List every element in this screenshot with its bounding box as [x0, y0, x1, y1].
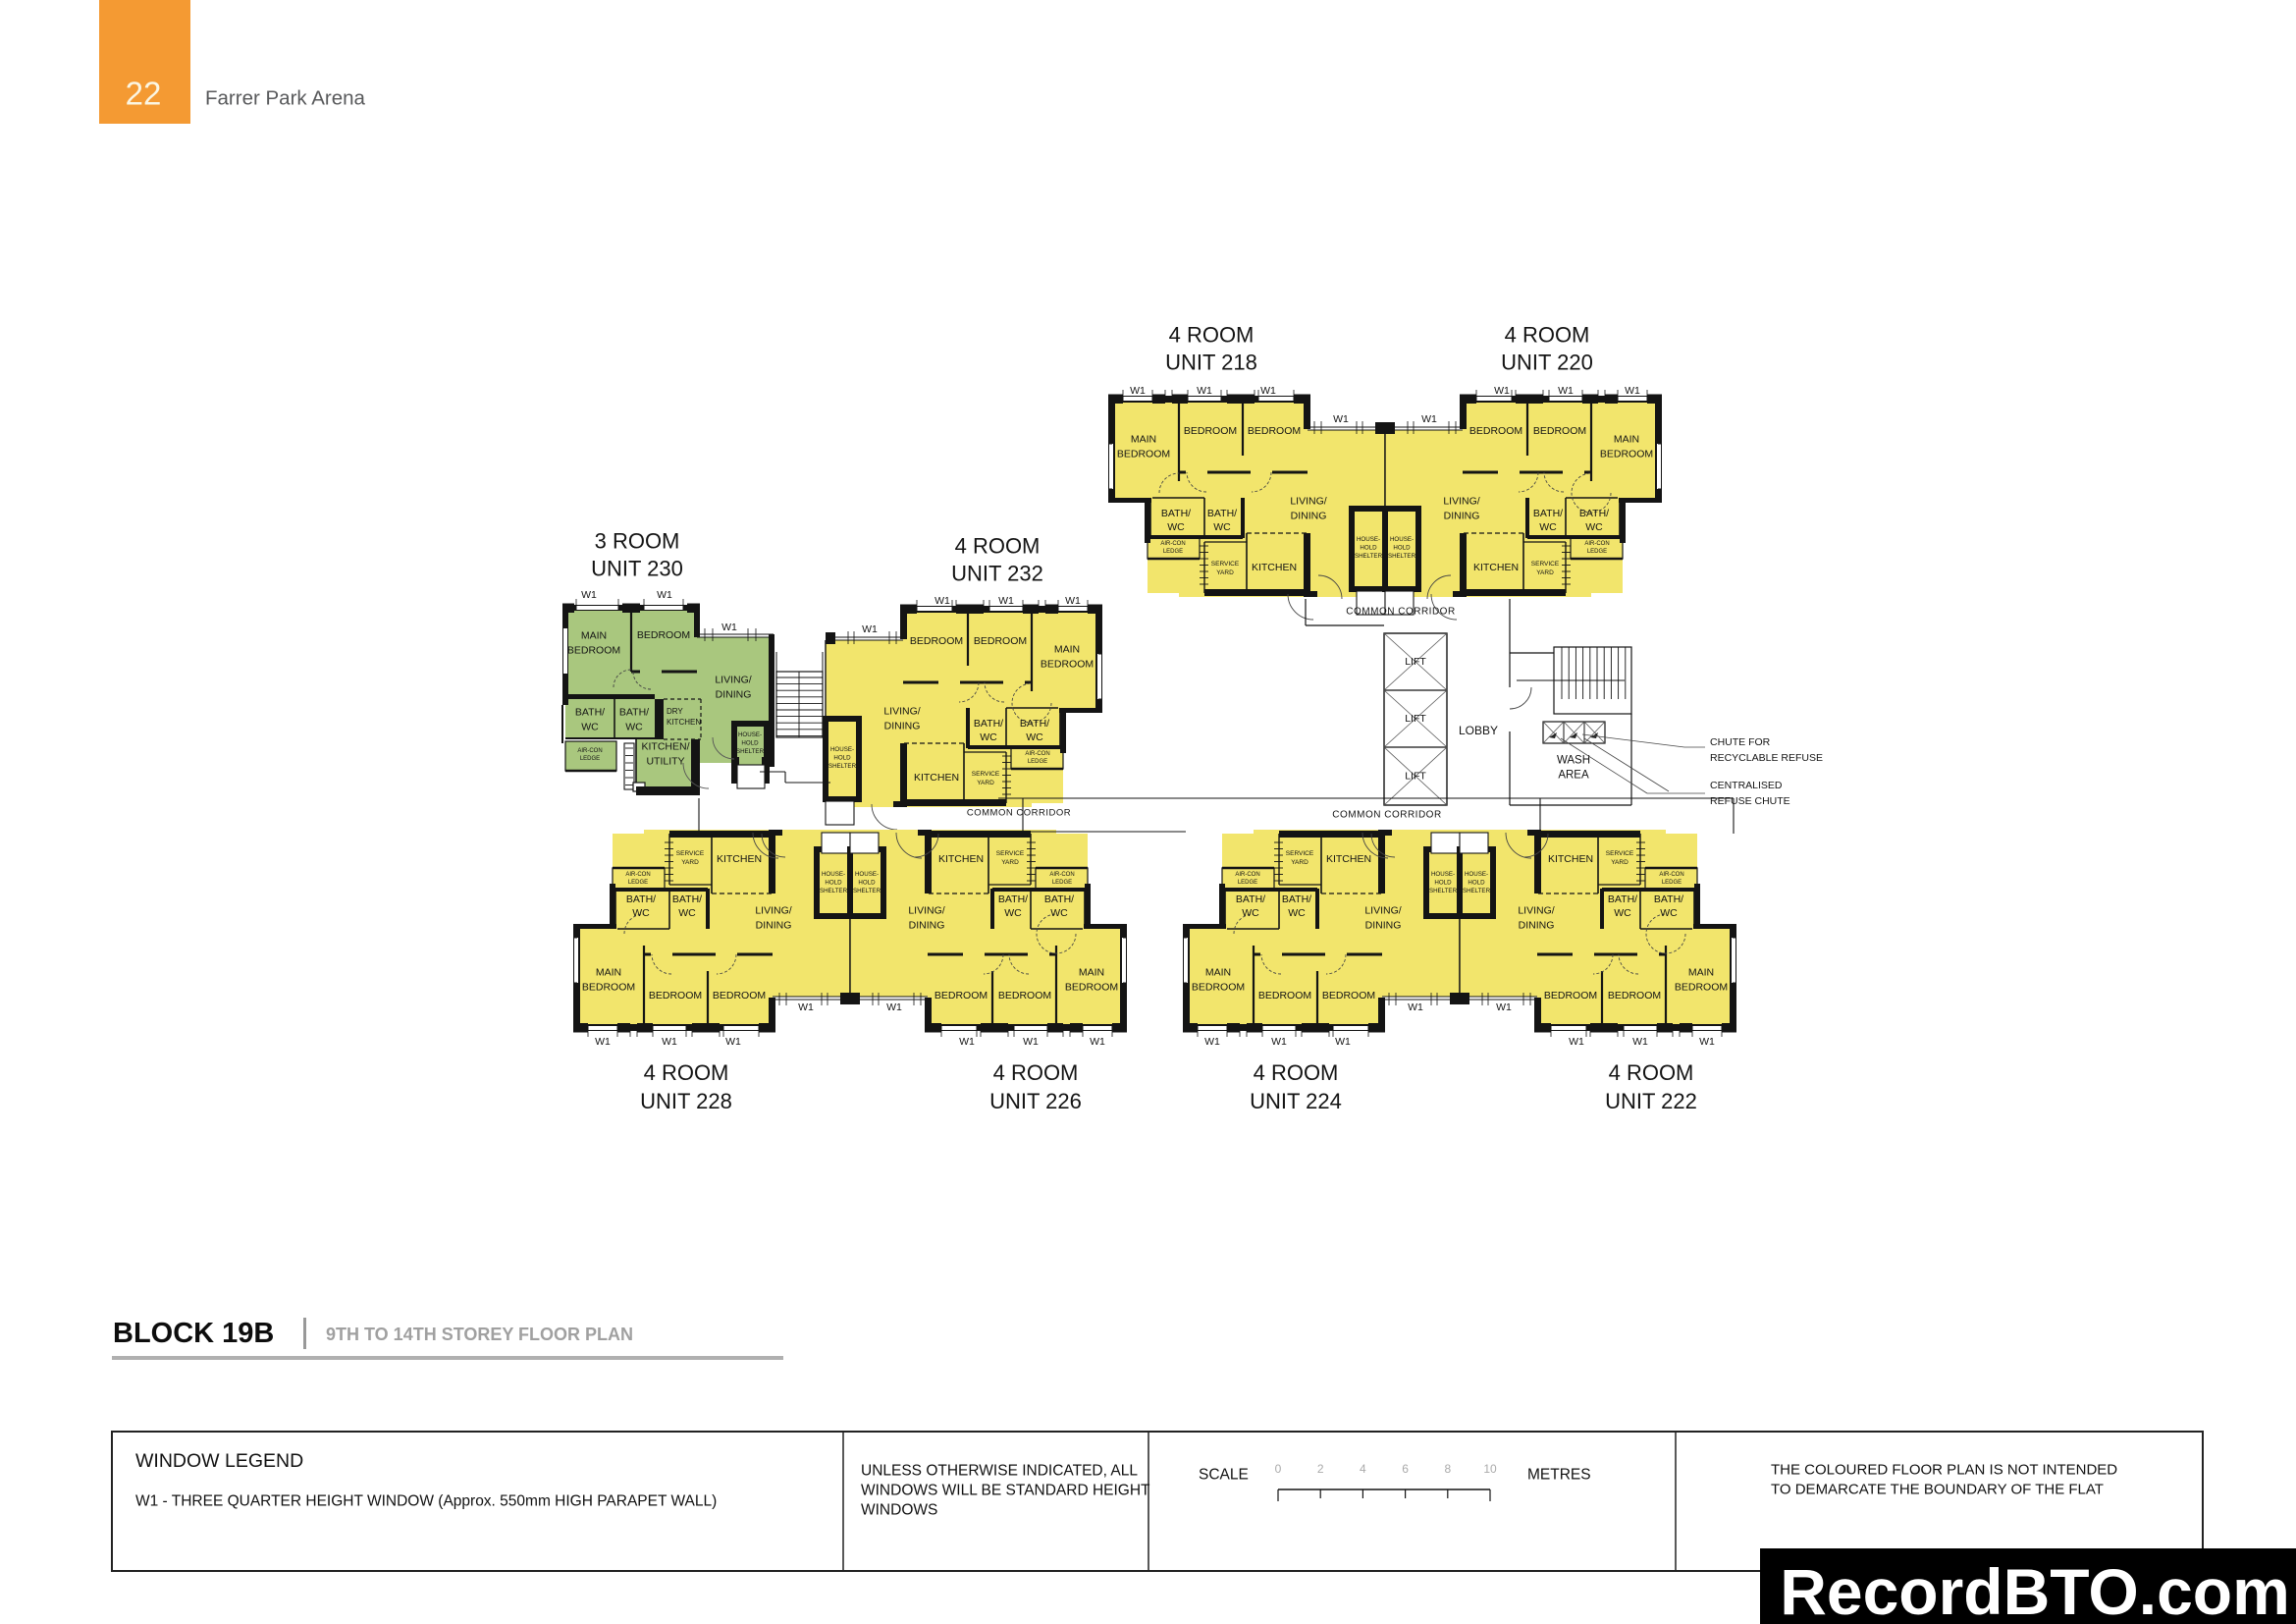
- svg-text:W1: W1: [1421, 413, 1437, 425]
- svg-text:W1: W1: [886, 1001, 902, 1013]
- svg-text:WC: WC: [625, 722, 643, 733]
- svg-text:HOLD: HOLD: [1360, 545, 1377, 552]
- svg-text:TO DEMARCATE THE BOUNDARY OF T: TO DEMARCATE THE BOUNDARY OF THE FLAT: [1771, 1482, 2104, 1498]
- svg-text:BATH/: BATH/: [1207, 508, 1237, 519]
- svg-text:DINING: DINING: [1365, 920, 1402, 932]
- svg-text:COMMON CORRIDOR: COMMON CORRIDOR: [1332, 810, 1441, 821]
- svg-text:BEDROOM: BEDROOM: [1248, 425, 1301, 437]
- svg-text:BEDROOM: BEDROOM: [1258, 990, 1311, 1001]
- svg-text:SERVICE: SERVICE: [1531, 561, 1560, 568]
- svg-text:BEDROOM: BEDROOM: [1065, 982, 1118, 994]
- svg-text:LIVING/: LIVING/: [755, 905, 791, 917]
- svg-text:LIFT: LIFT: [1405, 771, 1426, 783]
- svg-text:LEDGE: LEDGE: [1238, 880, 1257, 886]
- svg-text:3 ROOM: 3 ROOM: [595, 529, 680, 554]
- svg-text:BEDROOM: BEDROOM: [1184, 425, 1237, 437]
- svg-text:MAIN: MAIN: [1054, 644, 1080, 656]
- svg-text:4 ROOM: 4 ROOM: [993, 1060, 1079, 1085]
- svg-text:LIVING/: LIVING/: [1290, 496, 1326, 508]
- svg-text:SHELTER: SHELTER: [1355, 553, 1383, 560]
- svg-text:WC: WC: [1539, 521, 1557, 533]
- svg-text:W1: W1: [662, 1036, 677, 1048]
- svg-text:BATH/: BATH/: [998, 893, 1028, 905]
- svg-text:BEDROOM: BEDROOM: [1675, 982, 1728, 994]
- svg-text:KITCHEN: KITCHEN: [717, 853, 762, 865]
- svg-text:BATH/: BATH/: [1020, 718, 1049, 730]
- svg-text:W1: W1: [1260, 385, 1276, 397]
- svg-text:SERVICE: SERVICE: [676, 850, 705, 857]
- svg-text:W1: W1: [934, 595, 950, 607]
- svg-text:SHELTER: SHELTER: [736, 748, 765, 755]
- svg-text:2: 2: [1317, 1462, 1324, 1476]
- svg-text:DINING: DINING: [756, 920, 792, 932]
- svg-text:UNIT 226: UNIT 226: [989, 1089, 1082, 1113]
- svg-text:AIR-CON: AIR-CON: [1659, 872, 1683, 878]
- svg-text:SERVICE: SERVICE: [1606, 850, 1634, 857]
- svg-text:HOLD: HOLD: [1393, 545, 1411, 552]
- svg-text:BATH/: BATH/: [1533, 508, 1563, 519]
- svg-text:YARD: YARD: [1216, 569, 1234, 576]
- svg-text:6: 6: [1402, 1462, 1409, 1476]
- svg-text:BEDROOM: BEDROOM: [1117, 449, 1170, 460]
- svg-text:LIFT: LIFT: [1405, 713, 1426, 725]
- svg-text:UNIT 230: UNIT 230: [591, 557, 683, 581]
- svg-text:LEDGE: LEDGE: [1028, 759, 1047, 765]
- svg-text:UNIT 220: UNIT 220: [1501, 351, 1593, 375]
- svg-text:BATH/: BATH/: [1161, 508, 1191, 519]
- svg-text:COMMON CORRIDOR: COMMON CORRIDOR: [1346, 607, 1455, 618]
- svg-text:W1: W1: [1699, 1036, 1715, 1048]
- svg-text:YARD: YARD: [977, 780, 994, 786]
- svg-text:SCALE: SCALE: [1199, 1467, 1249, 1484]
- svg-text:4 ROOM: 4 ROOM: [644, 1060, 729, 1085]
- svg-text:W1: W1: [581, 589, 597, 601]
- svg-text:UNIT 232: UNIT 232: [951, 562, 1043, 586]
- svg-text:AIR-CON: AIR-CON: [1160, 541, 1185, 547]
- svg-text:22: 22: [126, 76, 162, 112]
- svg-text:LEDGE: LEDGE: [1662, 880, 1682, 886]
- svg-text:KITCHEN/: KITCHEN/: [641, 741, 689, 753]
- svg-text:UTILITY: UTILITY: [646, 756, 684, 768]
- svg-text:DINING: DINING: [884, 721, 921, 732]
- svg-text:WC: WC: [1585, 521, 1603, 533]
- svg-text:W1: W1: [1408, 1001, 1423, 1013]
- svg-text:LEDGE: LEDGE: [1587, 549, 1607, 555]
- svg-text:KITCHEN: KITCHEN: [1326, 853, 1371, 865]
- svg-text:9TH TO 14TH STOREY FLOOR PLAN: 9TH TO 14TH STOREY FLOOR PLAN: [326, 1325, 633, 1344]
- svg-text:SERVICE: SERVICE: [1211, 561, 1240, 568]
- svg-text:4 ROOM: 4 ROOM: [1254, 1060, 1339, 1085]
- svg-text:WC: WC: [581, 722, 599, 733]
- svg-text:DINING: DINING: [716, 689, 752, 701]
- svg-text:W1: W1: [1496, 1001, 1512, 1013]
- svg-text:THE COLOURED FLOOR PLAN IS NOT: THE COLOURED FLOOR PLAN IS NOT INTENDED: [1771, 1462, 2117, 1479]
- svg-text:DINING: DINING: [1519, 920, 1555, 932]
- svg-text:MAIN: MAIN: [1079, 967, 1104, 979]
- svg-text:LEDGE: LEDGE: [1052, 880, 1072, 886]
- svg-text:W1: W1: [959, 1036, 975, 1048]
- svg-text:BEDROOM: BEDROOM: [1533, 425, 1586, 437]
- svg-text:W1: W1: [862, 623, 878, 635]
- svg-text:WINDOWS: WINDOWS: [861, 1502, 937, 1519]
- svg-text:BEDROOM: BEDROOM: [1600, 449, 1653, 460]
- svg-text:BATH/: BATH/: [672, 893, 702, 905]
- svg-text:BEDROOM: BEDROOM: [637, 629, 690, 641]
- svg-text:BEDROOM: BEDROOM: [998, 990, 1051, 1001]
- svg-text:SHELTER: SHELTER: [1388, 553, 1416, 560]
- svg-text:YARD: YARD: [1611, 859, 1629, 866]
- svg-text:LIVING/: LIVING/: [1364, 905, 1401, 917]
- svg-text:W1: W1: [721, 622, 737, 633]
- svg-text:BATH/: BATH/: [1608, 893, 1637, 905]
- svg-text:W1: W1: [1065, 595, 1081, 607]
- svg-text:BEDROOM: BEDROOM: [910, 635, 963, 647]
- svg-text:4 ROOM: 4 ROOM: [1169, 323, 1255, 348]
- svg-text:SERVICE: SERVICE: [1286, 850, 1314, 857]
- svg-text:HOUSE-: HOUSE-: [1431, 871, 1455, 878]
- svg-text:WC: WC: [1167, 521, 1185, 533]
- svg-text:MAIN: MAIN: [581, 630, 607, 642]
- svg-text:UNIT 224: UNIT 224: [1250, 1089, 1342, 1113]
- svg-text:MAIN: MAIN: [1131, 434, 1156, 446]
- svg-text:LEDGE: LEDGE: [628, 880, 648, 886]
- svg-text:HOLD: HOLD: [833, 755, 851, 762]
- svg-text:W1: W1: [998, 595, 1014, 607]
- svg-text:SHELTER: SHELTER: [1429, 888, 1458, 894]
- svg-text:WC: WC: [632, 907, 650, 919]
- svg-text:W1: W1: [1569, 1036, 1584, 1048]
- svg-text:RECYCLABLE REFUSE: RECYCLABLE REFUSE: [1710, 752, 1823, 764]
- svg-text:4 ROOM: 4 ROOM: [1609, 1060, 1694, 1085]
- svg-text:DINING: DINING: [1444, 511, 1480, 522]
- svg-text:W1: W1: [1333, 413, 1349, 425]
- svg-text:WINDOW LEGEND: WINDOW LEGEND: [135, 1450, 303, 1472]
- svg-text:UNLESS OTHERWISE INDICATED, AL: UNLESS OTHERWISE INDICATED, ALL: [861, 1463, 1138, 1480]
- svg-text:HOUSE-: HOUSE-: [1357, 536, 1380, 543]
- svg-text:BATH/: BATH/: [1236, 893, 1265, 905]
- svg-text:Farrer Park Arena: Farrer Park Arena: [205, 87, 366, 110]
- svg-text:KITCHEN: KITCHEN: [667, 718, 701, 727]
- svg-text:BEDROOM: BEDROOM: [582, 982, 635, 994]
- svg-text:WC: WC: [678, 907, 696, 919]
- svg-text:BEDROOM: BEDROOM: [1322, 990, 1375, 1001]
- svg-text:W1: W1: [798, 1001, 814, 1013]
- svg-text:HOUSE-: HOUSE-: [738, 731, 762, 738]
- svg-text:W1: W1: [1632, 1036, 1648, 1048]
- svg-text:BATH/: BATH/: [619, 707, 649, 719]
- svg-text:W1: W1: [1271, 1036, 1287, 1048]
- svg-text:W1: W1: [1625, 385, 1640, 397]
- svg-text:AIR-CON: AIR-CON: [1584, 541, 1609, 547]
- svg-text:BATH/: BATH/: [1579, 508, 1609, 519]
- svg-text:AIR-CON: AIR-CON: [1049, 872, 1074, 878]
- svg-text:W1: W1: [1494, 385, 1510, 397]
- svg-text:MAIN: MAIN: [1205, 967, 1231, 979]
- svg-text:HOLD: HOLD: [1468, 880, 1485, 887]
- svg-text:BEDROOM: BEDROOM: [1544, 990, 1597, 1001]
- svg-text:WC: WC: [1288, 907, 1306, 919]
- svg-text:HOUSE-: HOUSE-: [822, 871, 845, 878]
- svg-text:0: 0: [1275, 1462, 1282, 1476]
- svg-text:WASH: WASH: [1557, 755, 1590, 767]
- svg-text:RecordBTO.com: RecordBTO.com: [1780, 1555, 2290, 1624]
- svg-text:YARD: YARD: [1291, 859, 1308, 866]
- svg-text:LIFT: LIFT: [1405, 656, 1426, 668]
- svg-text:MAIN: MAIN: [1614, 434, 1639, 446]
- svg-text:LIVING/: LIVING/: [883, 706, 920, 718]
- svg-text:HOUSE-: HOUSE-: [1465, 871, 1488, 878]
- svg-text:SHELTER: SHELTER: [820, 888, 848, 894]
- svg-text:CHUTE FOR: CHUTE FOR: [1710, 736, 1771, 748]
- svg-text:SHELTER: SHELTER: [1463, 888, 1491, 894]
- svg-text:W1: W1: [725, 1036, 741, 1048]
- svg-text:LIVING/: LIVING/: [1518, 905, 1554, 917]
- svg-text:BLOCK 19B: BLOCK 19B: [113, 1318, 274, 1349]
- svg-text:HOLD: HOLD: [741, 740, 759, 747]
- svg-text:4: 4: [1360, 1462, 1366, 1476]
- svg-text:HOUSE-: HOUSE-: [830, 746, 854, 753]
- svg-text:BEDROOM: BEDROOM: [934, 990, 988, 1001]
- svg-text:8: 8: [1444, 1462, 1451, 1476]
- svg-text:UNIT 228: UNIT 228: [640, 1089, 732, 1113]
- svg-text:BEDROOM: BEDROOM: [1192, 982, 1245, 994]
- svg-text:WC: WC: [1213, 521, 1231, 533]
- svg-text:UNIT 222: UNIT 222: [1605, 1089, 1697, 1113]
- svg-text:SHELTER: SHELTER: [853, 888, 881, 894]
- svg-text:WC: WC: [1026, 731, 1043, 743]
- svg-text:AIR-CON: AIR-CON: [1025, 751, 1049, 757]
- svg-text:BATH/: BATH/: [626, 893, 656, 905]
- svg-text:REFUSE CHUTE: REFUSE CHUTE: [1710, 795, 1790, 807]
- svg-text:LIVING/: LIVING/: [908, 905, 944, 917]
- svg-text:W1: W1: [595, 1036, 611, 1048]
- svg-text:COMMON CORRIDOR: COMMON CORRIDOR: [967, 808, 1071, 819]
- svg-text:BATH/: BATH/: [1282, 893, 1311, 905]
- svg-text:BATH/: BATH/: [1044, 893, 1074, 905]
- svg-text:HOUSE-: HOUSE-: [1390, 536, 1414, 543]
- svg-text:WC: WC: [1614, 907, 1631, 919]
- svg-text:DINING: DINING: [909, 920, 945, 932]
- svg-text:BEDROOM: BEDROOM: [1608, 990, 1661, 1001]
- svg-text:HOLD: HOLD: [1434, 880, 1452, 887]
- svg-text:AIR-CON: AIR-CON: [577, 748, 602, 754]
- svg-text:W1 - THREE QUARTER HEIGHT WIND: W1 - THREE QUARTER HEIGHT WINDOW (Approx…: [135, 1493, 717, 1510]
- svg-text:LEDGE: LEDGE: [580, 756, 600, 762]
- svg-text:WC: WC: [980, 731, 997, 743]
- svg-text:MAIN: MAIN: [596, 967, 621, 979]
- svg-text:W1: W1: [1197, 385, 1212, 397]
- svg-text:W1: W1: [1204, 1036, 1220, 1048]
- svg-text:CENTRALISED: CENTRALISED: [1710, 780, 1783, 791]
- svg-text:HOLD: HOLD: [825, 880, 842, 887]
- svg-text:KITCHEN: KITCHEN: [914, 772, 959, 784]
- svg-text:BEDROOM: BEDROOM: [567, 645, 620, 657]
- svg-text:W1: W1: [1558, 385, 1574, 397]
- svg-text:W1: W1: [657, 589, 672, 601]
- svg-text:KITCHEN: KITCHEN: [1252, 562, 1297, 573]
- svg-text:WC: WC: [1660, 907, 1678, 919]
- svg-text:WINDOWS WILL BE STANDARD HEIGH: WINDOWS WILL BE STANDARD HEIGHT: [861, 1483, 1150, 1499]
- svg-text:METRES: METRES: [1527, 1467, 1591, 1484]
- svg-text:LIVING/: LIVING/: [1443, 496, 1479, 508]
- svg-text:KITCHEN: KITCHEN: [1548, 853, 1593, 865]
- svg-text:W1: W1: [1090, 1036, 1105, 1048]
- svg-text:BEDROOM: BEDROOM: [713, 990, 766, 1001]
- svg-text:LIVING/: LIVING/: [715, 675, 751, 686]
- svg-text:AIR-CON: AIR-CON: [625, 872, 650, 878]
- svg-text:BATH/: BATH/: [974, 718, 1003, 730]
- svg-text:10: 10: [1483, 1462, 1497, 1476]
- svg-text:KITCHEN: KITCHEN: [1473, 562, 1519, 573]
- svg-text:BEDROOM: BEDROOM: [649, 990, 702, 1001]
- svg-text:BEDROOM: BEDROOM: [1041, 659, 1094, 671]
- svg-text:HOUSE-: HOUSE-: [855, 871, 879, 878]
- svg-text:W1: W1: [1130, 385, 1146, 397]
- svg-text:WC: WC: [1050, 907, 1068, 919]
- svg-text:WC: WC: [1004, 907, 1022, 919]
- svg-text:YARD: YARD: [1001, 859, 1019, 866]
- svg-text:BATH/: BATH/: [575, 707, 605, 719]
- svg-text:BEDROOM: BEDROOM: [1469, 425, 1522, 437]
- svg-text:LOBBY: LOBBY: [1459, 724, 1498, 737]
- svg-text:AREA: AREA: [1558, 770, 1589, 782]
- svg-text:LEDGE: LEDGE: [1163, 549, 1183, 555]
- svg-text:4 ROOM: 4 ROOM: [1505, 323, 1590, 348]
- svg-text:WC: WC: [1242, 907, 1259, 919]
- svg-text:W1: W1: [1335, 1036, 1351, 1048]
- svg-text:SERVICE: SERVICE: [996, 850, 1025, 857]
- svg-text:AIR-CON: AIR-CON: [1235, 872, 1259, 878]
- svg-text:MAIN: MAIN: [1688, 967, 1714, 979]
- svg-text:BEDROOM: BEDROOM: [974, 635, 1027, 647]
- svg-text:4 ROOM: 4 ROOM: [955, 534, 1041, 559]
- svg-text:UNIT 218: UNIT 218: [1165, 351, 1257, 375]
- svg-text:DINING: DINING: [1291, 511, 1327, 522]
- svg-text:W1: W1: [1023, 1036, 1039, 1048]
- svg-text:HOLD: HOLD: [858, 880, 876, 887]
- svg-text:KITCHEN: KITCHEN: [938, 853, 984, 865]
- svg-text:DRY: DRY: [667, 707, 683, 716]
- svg-text:SERVICE: SERVICE: [972, 771, 1000, 778]
- svg-text:BATH/: BATH/: [1654, 893, 1683, 905]
- svg-text:YARD: YARD: [1536, 569, 1554, 576]
- svg-text:YARD: YARD: [681, 859, 699, 866]
- svg-text:SHELTER: SHELTER: [828, 763, 857, 770]
